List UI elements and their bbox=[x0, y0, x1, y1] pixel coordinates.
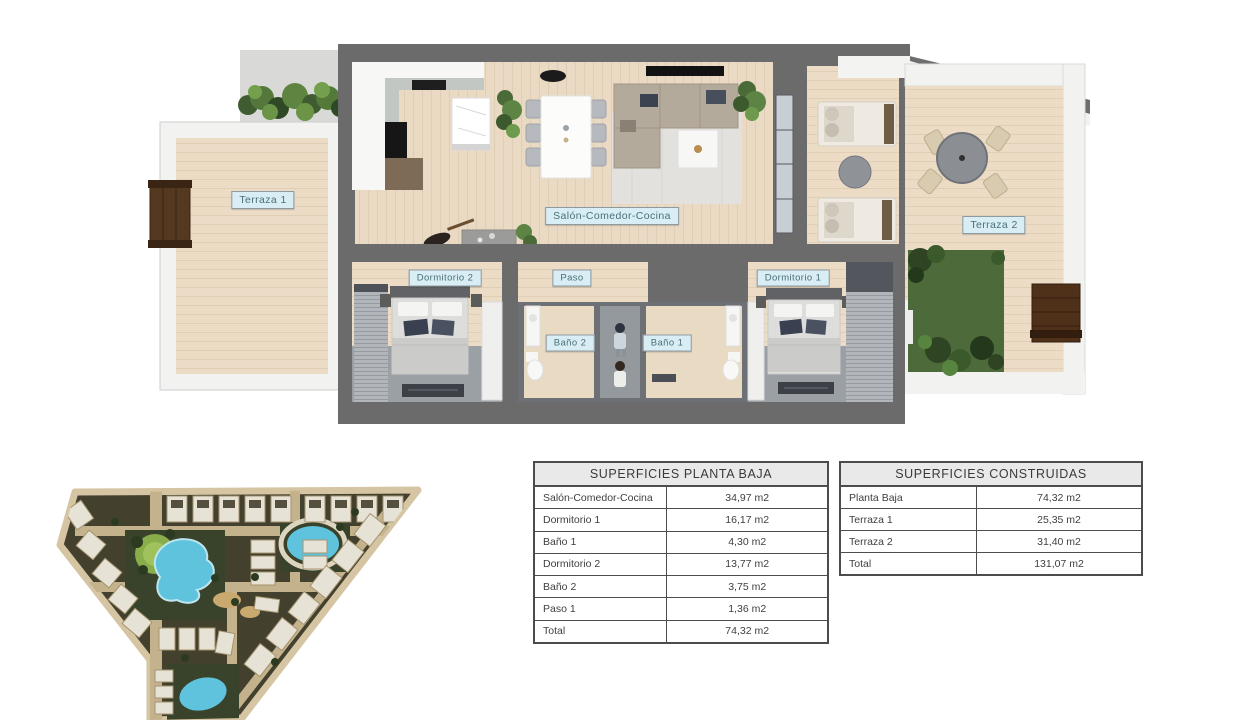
site-plan-drawing bbox=[55, 482, 435, 720]
row-label: Total bbox=[841, 553, 976, 574]
table-row: Total 74,32 m2 bbox=[535, 621, 827, 642]
row-label: Planta Baja bbox=[841, 487, 976, 508]
floor-plan-drawing bbox=[0, 0, 1240, 455]
pendant-lamp bbox=[540, 70, 566, 82]
hallway bbox=[600, 306, 640, 398]
row-label: Salón-Comedor-Cocina bbox=[535, 487, 666, 508]
tv bbox=[646, 66, 724, 76]
row-value: 3,75 m2 bbox=[666, 576, 827, 597]
wood-bench bbox=[148, 180, 192, 248]
bano-2-room bbox=[524, 306, 594, 398]
table-row: Planta Baja 74,32 m2 bbox=[841, 487, 1141, 509]
row-value: 25,35 m2 bbox=[976, 509, 1141, 530]
table-row: Dormitorio 2 13,77 m2 bbox=[535, 554, 827, 576]
room-label-dormitorio-2: Dormitorio 2 bbox=[409, 270, 482, 287]
room-label-terraza-1: Terraza 1 bbox=[231, 191, 294, 209]
row-label: Terraza 2 bbox=[841, 531, 976, 552]
row-label: Dormitorio 2 bbox=[535, 554, 666, 575]
room-label-bano-2: Baño 2 bbox=[546, 335, 595, 352]
row-value: 31,40 m2 bbox=[976, 531, 1141, 552]
row-label: Total bbox=[535, 621, 666, 642]
row-value: 34,97 m2 bbox=[666, 487, 827, 508]
row-value: 4,30 m2 bbox=[666, 532, 827, 553]
row-label: Paso 1 bbox=[535, 598, 666, 619]
table-row: Terraza 1 25,35 m2 bbox=[841, 509, 1141, 531]
table-row: Baño 2 3,75 m2 bbox=[535, 576, 827, 598]
table-row: Terraza 2 31,40 m2 bbox=[841, 531, 1141, 553]
room-label-paso: Paso bbox=[552, 270, 591, 287]
double-bed bbox=[756, 288, 852, 374]
row-label: Terraza 1 bbox=[841, 509, 976, 530]
wardrobe bbox=[748, 302, 764, 400]
pergola-bench bbox=[1030, 284, 1082, 342]
room-label-terraza-2: Terraza 2 bbox=[962, 216, 1025, 234]
table-row: Salón-Comedor-Cocina 34,97 m2 bbox=[535, 487, 827, 509]
floor-plan-3d: Terraza 1 Salón-Comedor-Cocina Dormitori… bbox=[0, 0, 1240, 455]
table-title: SUPERFICIES PLANTA BAJA bbox=[535, 463, 827, 487]
superficies-construidas-table: SUPERFICIES CONSTRUIDAS Planta Baja 74,3… bbox=[839, 461, 1143, 576]
double-bed bbox=[380, 286, 482, 374]
site-plan bbox=[55, 482, 435, 720]
oven-column bbox=[385, 122, 407, 158]
table-row: Total 131,07 m2 bbox=[841, 553, 1141, 574]
superficies-planta-baja-table: SUPERFICIES PLANTA BAJA Salón-Comedor-Co… bbox=[533, 461, 829, 644]
brochure-page: Terraza 1 Salón-Comedor-Cocina Dormitori… bbox=[0, 0, 1240, 720]
side-table bbox=[839, 156, 871, 188]
row-label: Baño 2 bbox=[535, 576, 666, 597]
table-row: Paso 1 1,36 m2 bbox=[535, 598, 827, 620]
terraza-1-zone bbox=[148, 50, 349, 390]
wardrobe bbox=[482, 302, 502, 400]
kitchen-island bbox=[452, 98, 490, 150]
row-value: 1,36 m2 bbox=[666, 598, 827, 619]
bano-1-room bbox=[646, 306, 742, 398]
table-title: SUPERFICIES CONSTRUIDAS bbox=[841, 463, 1141, 487]
garden bbox=[905, 245, 1005, 376]
toilet bbox=[527, 360, 543, 380]
building-cluster bbox=[155, 670, 173, 714]
window-blinds bbox=[846, 292, 893, 402]
window-blinds bbox=[354, 292, 388, 402]
person-figure bbox=[614, 361, 626, 387]
row-value: 74,32 m2 bbox=[976, 487, 1141, 508]
row-label: Dormitorio 1 bbox=[535, 509, 666, 530]
room-label-salon: Salón-Comedor-Cocina bbox=[545, 207, 679, 225]
cooktop bbox=[412, 80, 446, 90]
row-value: 16,17 m2 bbox=[666, 509, 827, 530]
toilet bbox=[723, 360, 739, 380]
room-label-dormitorio-1: Dormitorio 1 bbox=[757, 270, 830, 287]
row-label: Baño 1 bbox=[535, 532, 666, 553]
row-value: 74,32 m2 bbox=[666, 621, 827, 642]
table-row: Dormitorio 1 16,17 m2 bbox=[535, 509, 827, 531]
row-value: 13,77 m2 bbox=[666, 554, 827, 575]
glass-door bbox=[776, 95, 793, 233]
row-value: 131,07 m2 bbox=[976, 553, 1141, 574]
room-label-bano-1: Baño 1 bbox=[643, 335, 692, 352]
table-row: Baño 1 4,30 m2 bbox=[535, 532, 827, 554]
